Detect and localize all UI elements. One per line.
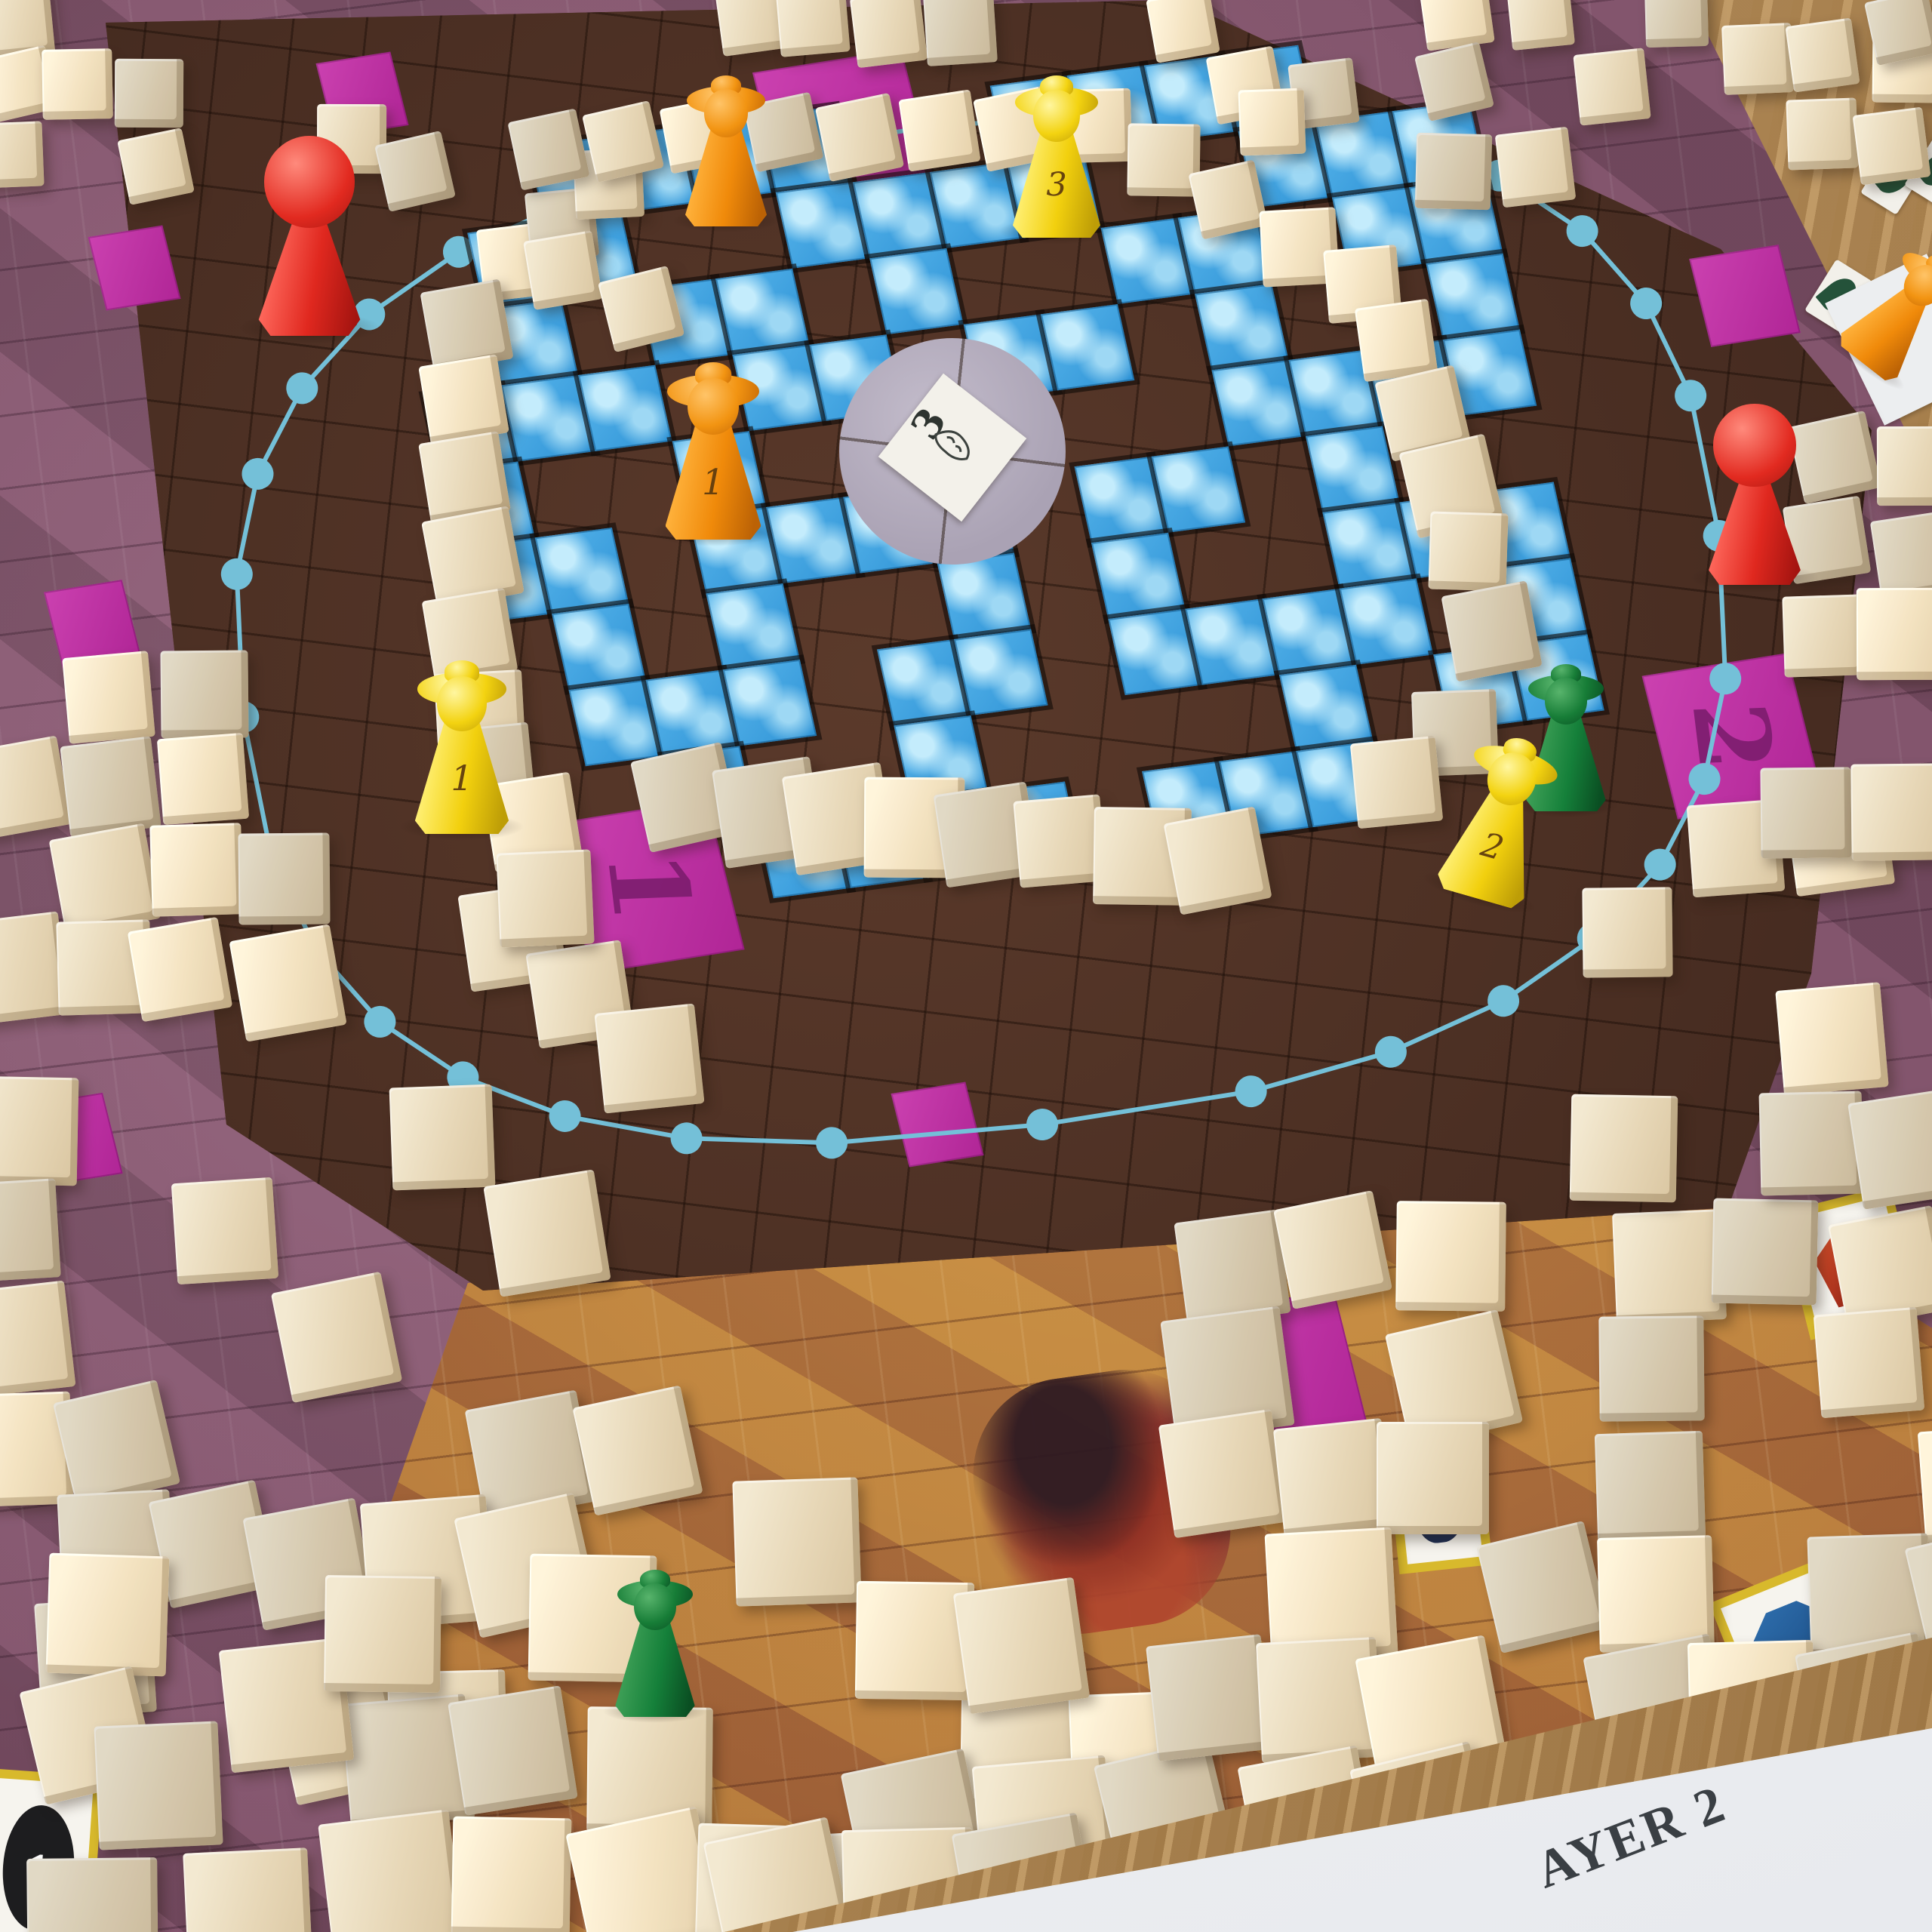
wooden-cube <box>1350 736 1443 829</box>
pawn-number: 1 <box>410 758 514 798</box>
wooden-cube <box>62 651 155 744</box>
wooden-cube <box>46 1553 170 1677</box>
wooden-cube <box>1786 97 1859 170</box>
pawn-body <box>1706 480 1804 585</box>
wooden-cube <box>1146 1634 1273 1761</box>
wooden-cube <box>1721 23 1794 95</box>
wooden-cube <box>732 1478 862 1607</box>
wooden-cube <box>229 924 346 1041</box>
water-tile <box>1195 284 1288 370</box>
wooden-cube <box>572 1385 703 1516</box>
pawn-yellow-2: 3 <box>1008 75 1106 238</box>
pawn-body <box>685 130 767 226</box>
pawn-yellow-4: 1 <box>410 660 514 834</box>
wooden-cube <box>1146 0 1220 63</box>
wooden-cube <box>898 90 980 172</box>
wooden-cube <box>115 59 183 128</box>
pawn-head <box>264 136 355 228</box>
water-tile <box>578 365 672 451</box>
water-tile <box>954 629 1048 715</box>
track-dot <box>1233 1074 1269 1109</box>
wooden-cube <box>117 128 195 205</box>
wooden-cube <box>923 0 998 66</box>
pawn-head <box>1713 404 1795 487</box>
wooden-cube <box>171 1177 278 1284</box>
wooden-cube <box>0 1281 75 1398</box>
wooden-cube <box>1595 1431 1706 1542</box>
wooden-cube <box>42 48 112 119</box>
water-tile <box>869 248 963 334</box>
wooden-cube <box>1612 1209 1727 1324</box>
wooden-cube <box>595 1003 705 1113</box>
wooden-cube <box>1013 794 1106 888</box>
water-tile <box>1041 304 1134 390</box>
wooden-cube <box>1582 887 1673 978</box>
track-dot <box>1373 1034 1408 1069</box>
wooden-cube <box>496 849 594 947</box>
wooden-cube <box>953 1577 1091 1715</box>
wooden-cube <box>318 1809 464 1932</box>
wooden-cube <box>1644 0 1709 48</box>
water-tile <box>937 553 1031 639</box>
wooden-cube <box>0 122 45 189</box>
wooden-cube <box>850 0 928 68</box>
wooden-cube <box>1158 1409 1288 1539</box>
water-tile <box>1340 578 1433 664</box>
pawn-number: 1 <box>660 462 767 503</box>
water-tile <box>1426 254 1519 340</box>
wooden-cube <box>1870 509 1932 600</box>
water-tile <box>1306 426 1399 512</box>
wooden-cube <box>1856 587 1932 680</box>
wooden-cube <box>1852 106 1930 185</box>
track-dot <box>219 556 254 592</box>
wooden-cube <box>1273 1190 1392 1309</box>
track-dot <box>1025 1107 1060 1143</box>
wooden-cube <box>0 1076 78 1186</box>
wooden-cube <box>238 832 331 924</box>
wooden-cube <box>150 823 244 916</box>
wooden-cube <box>60 737 161 838</box>
wooden-cube <box>1786 18 1860 93</box>
board-game-photo: 312 3 111 <box>0 0 1932 1932</box>
wooden-cube <box>183 1847 312 1932</box>
water-tile <box>723 660 817 746</box>
wooden-cube <box>26 1857 158 1932</box>
wooden-cube <box>483 1169 611 1297</box>
wooden-cube <box>775 0 851 57</box>
track-dot <box>1708 661 1743 697</box>
wooden-cube <box>1396 1201 1507 1312</box>
water-tile <box>535 528 629 614</box>
wooden-cube <box>582 100 664 183</box>
wooden-cube <box>1494 127 1576 208</box>
pawn-red-0 <box>250 136 370 336</box>
wooden-cube <box>1272 1418 1392 1537</box>
pawn-head <box>704 89 748 137</box>
wooden-cube <box>1506 0 1575 51</box>
water-tile <box>715 269 809 355</box>
water-tile <box>706 583 799 669</box>
wooden-cube <box>1783 594 1866 678</box>
pawn-green-9 <box>611 1570 700 1717</box>
wooden-cube <box>815 93 904 182</box>
wooden-cube <box>160 650 248 738</box>
wooden-cube <box>1127 124 1200 197</box>
wooden-cube <box>1712 1198 1819 1305</box>
pawn-head <box>1033 90 1080 142</box>
wooden-cube <box>508 108 590 190</box>
water-tile <box>552 604 645 690</box>
pawn-number: 3 <box>1008 166 1106 204</box>
wooden-cube <box>1429 512 1509 592</box>
wooden-cube <box>94 1721 223 1850</box>
track-dot <box>669 1121 704 1156</box>
wooden-cube <box>1377 1422 1489 1534</box>
wooden-cube <box>157 733 249 825</box>
pawn-body <box>615 1623 694 1717</box>
track-dot <box>1486 983 1521 1019</box>
track-dot <box>240 457 275 492</box>
pawn-head <box>437 676 487 732</box>
pawn-head <box>634 1583 676 1630</box>
wooden-cube <box>523 230 603 310</box>
track-dot <box>547 1099 583 1134</box>
wooden-cube <box>1775 982 1888 1095</box>
wooden-cube <box>1570 1094 1678 1202</box>
water-tile <box>1091 533 1185 619</box>
water-tile <box>1279 665 1373 751</box>
round-start-token: 3 <box>878 374 1027 522</box>
track-dot <box>814 1125 850 1161</box>
wooden-cube <box>324 1575 441 1693</box>
water-tile <box>1152 446 1245 532</box>
pawn-body <box>255 220 363 336</box>
wooden-cube <box>1814 1307 1924 1418</box>
center-circle: 3 <box>839 338 1066 565</box>
wooden-cube <box>1598 1315 1704 1421</box>
wooden-cube <box>1877 426 1932 506</box>
wooden-cube <box>0 1178 61 1283</box>
wooden-cube <box>1164 807 1272 915</box>
pawn-head <box>1545 678 1587 724</box>
wooden-cube <box>1851 763 1932 860</box>
wooden-cube <box>127 916 232 1022</box>
wooden-cube <box>1847 1088 1932 1209</box>
wooden-cube <box>1355 298 1438 381</box>
wooden-cube <box>271 1271 402 1402</box>
wooden-cube <box>1760 767 1851 858</box>
wooden-cube <box>389 1084 495 1191</box>
wooden-cube <box>1573 48 1651 125</box>
pawn-red-5 <box>1700 404 1809 585</box>
pawn-orange-1 <box>681 75 771 226</box>
wooden-cube <box>1415 133 1492 210</box>
wooden-cube <box>1238 88 1306 155</box>
pawn-orange-3: 1 <box>660 362 767 540</box>
pawn-head <box>688 378 739 435</box>
wooden-cube <box>451 1817 571 1932</box>
wooden-cube <box>448 1686 578 1817</box>
wooden-cube <box>49 823 162 936</box>
